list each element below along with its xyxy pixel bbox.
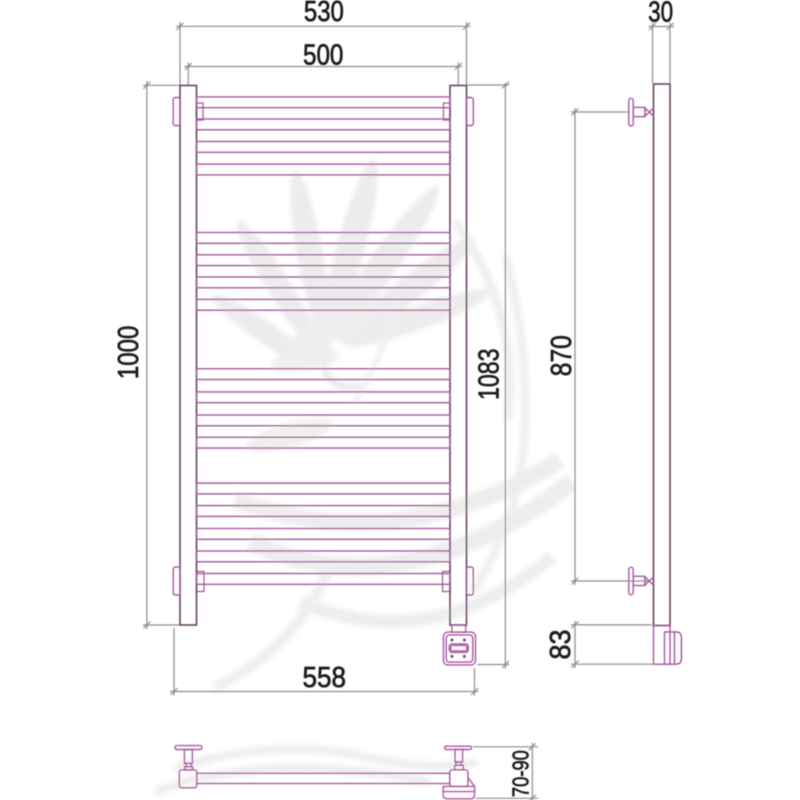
- svg-text:30: 30: [648, 0, 673, 29]
- svg-text:1083: 1083: [474, 349, 506, 401]
- svg-text:83: 83: [545, 630, 577, 660]
- svg-text:558: 558: [303, 662, 347, 694]
- svg-text:70-90: 70-90: [508, 750, 534, 797]
- svg-text:870: 870: [546, 335, 578, 376]
- svg-text:500: 500: [303, 40, 344, 72]
- svg-text:530: 530: [304, 0, 344, 28]
- svg-text:1000: 1000: [113, 326, 145, 379]
